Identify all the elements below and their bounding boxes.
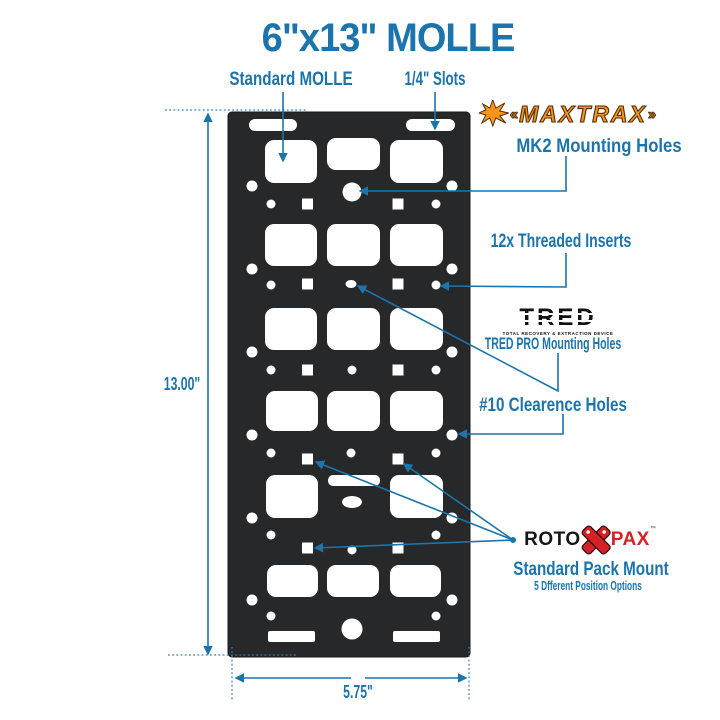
height-dimension-label: 13.00" [164,374,200,395]
diagram-canvas: 6"x13" MOLLE Standard MOLLE 1/4" Slots «… [0,0,720,720]
callout-tred-pro-mounting-holes: TRED PRO Mounting Holes [485,334,621,354]
threaded-insert-hole [432,531,441,540]
molle-cutout [265,308,317,350]
molle-cutout [267,565,318,597]
threaded-insert-hole [432,200,441,209]
molle-cutout [266,391,318,431]
molle-cutout [265,224,317,266]
threaded-insert-hole [432,612,441,621]
callout-threaded-inserts: 12x Threaded Inserts [491,231,632,253]
maxtrax-burst-icon [479,100,509,128]
square-pack-mount-hole [393,365,404,376]
molle-cutout [327,224,380,266]
callout-pack-positions: 5 Dfferent Position Options [534,578,642,593]
slot-cutout [268,631,315,642]
molle-cutout [327,391,380,431]
rotopax-logo: ROTO PAX ™ [524,524,656,556]
threaded-insert-hole [267,531,276,540]
threaded-insert-hole [267,281,276,290]
square-pack-mount-hole [302,543,313,554]
molle-cutout [390,140,443,183]
molle-cutout [327,138,380,170]
clearance-hole [247,264,258,275]
square-pack-mount-hole [393,279,404,290]
threaded-insert-hole [267,366,276,375]
leader-origin-dot [510,537,516,543]
callout-clearance-holes: #10 Clearence Holes [479,395,627,417]
oval-hole [342,496,362,508]
threaded-insert-hole [267,449,276,458]
callout-standard-molle: Standard MOLLE [229,69,352,91]
square-pack-mount-hole [393,199,404,210]
molle-cutout [390,391,443,431]
rotopax-roto-wordmark: ROTO [524,529,581,551]
slot-cutout [249,119,297,131]
center-hole [348,366,357,375]
clearance-hole [247,513,258,524]
clearance-hole [247,347,258,358]
molle-cutout [390,308,443,350]
molle-cutout [327,308,380,350]
square-pack-mount-hole [302,365,313,376]
clearance-hole [247,181,258,192]
slot-cutout [393,631,440,642]
large-mounting-hole [342,619,363,640]
rotopax-x-icon [579,524,613,556]
clearance-hole [447,181,458,192]
molle-cutout [265,140,317,183]
molle-cutout [390,224,443,266]
threaded-insert-hole [432,449,441,458]
width-dimension-label: 5.75" [343,682,373,703]
square-pack-mount-hole [393,454,404,465]
threaded-insert-hole [432,366,441,375]
center-hole [347,449,356,458]
maxtrax-chevron-icon: « [510,106,518,123]
clearance-hole [447,264,458,275]
molle-cutout [390,475,443,518]
clearance-hole [247,595,258,606]
square-pack-mount-hole [302,199,313,210]
threaded-insert-hole [267,200,276,209]
clearance-hole [247,430,258,441]
page-title: 6"x13" MOLLE [262,16,515,61]
rotopax-pax-wordmark: PAX [611,529,650,551]
threaded-insert-hole [432,281,441,290]
clearance-hole [447,347,458,358]
maxtrax-chevron-icon: » [648,106,656,123]
square-pack-mount-hole [302,279,313,290]
rotopax-trademark: ™ [650,526,656,532]
slot-cutout [406,119,455,131]
clearance-hole [447,595,458,606]
callout-quarter-slots: 1/4" Slots [404,69,465,91]
clearance-hole [447,430,458,441]
maxtrax-logo: « MAXTRAX » [479,100,657,128]
maxtrax-wordmark: MAXTRAX [519,101,647,128]
oval-hole [346,280,357,288]
molle-cutout [327,565,379,597]
threaded-insert-hole [267,612,276,621]
square-pack-mount-hole [302,454,313,465]
molle-cutout [390,565,441,597]
tred-logo: TRED TOTAL RECOVERY & EXTRACTION DEVICE [503,306,614,336]
molle-cutout [266,475,318,518]
clearance-leader [459,414,563,434]
callout-mk2-mounting-holes: MK2 Mounting Holes [516,136,681,158]
tred-wordmark: TRED [519,306,596,330]
large-mounting-hole [343,183,362,202]
